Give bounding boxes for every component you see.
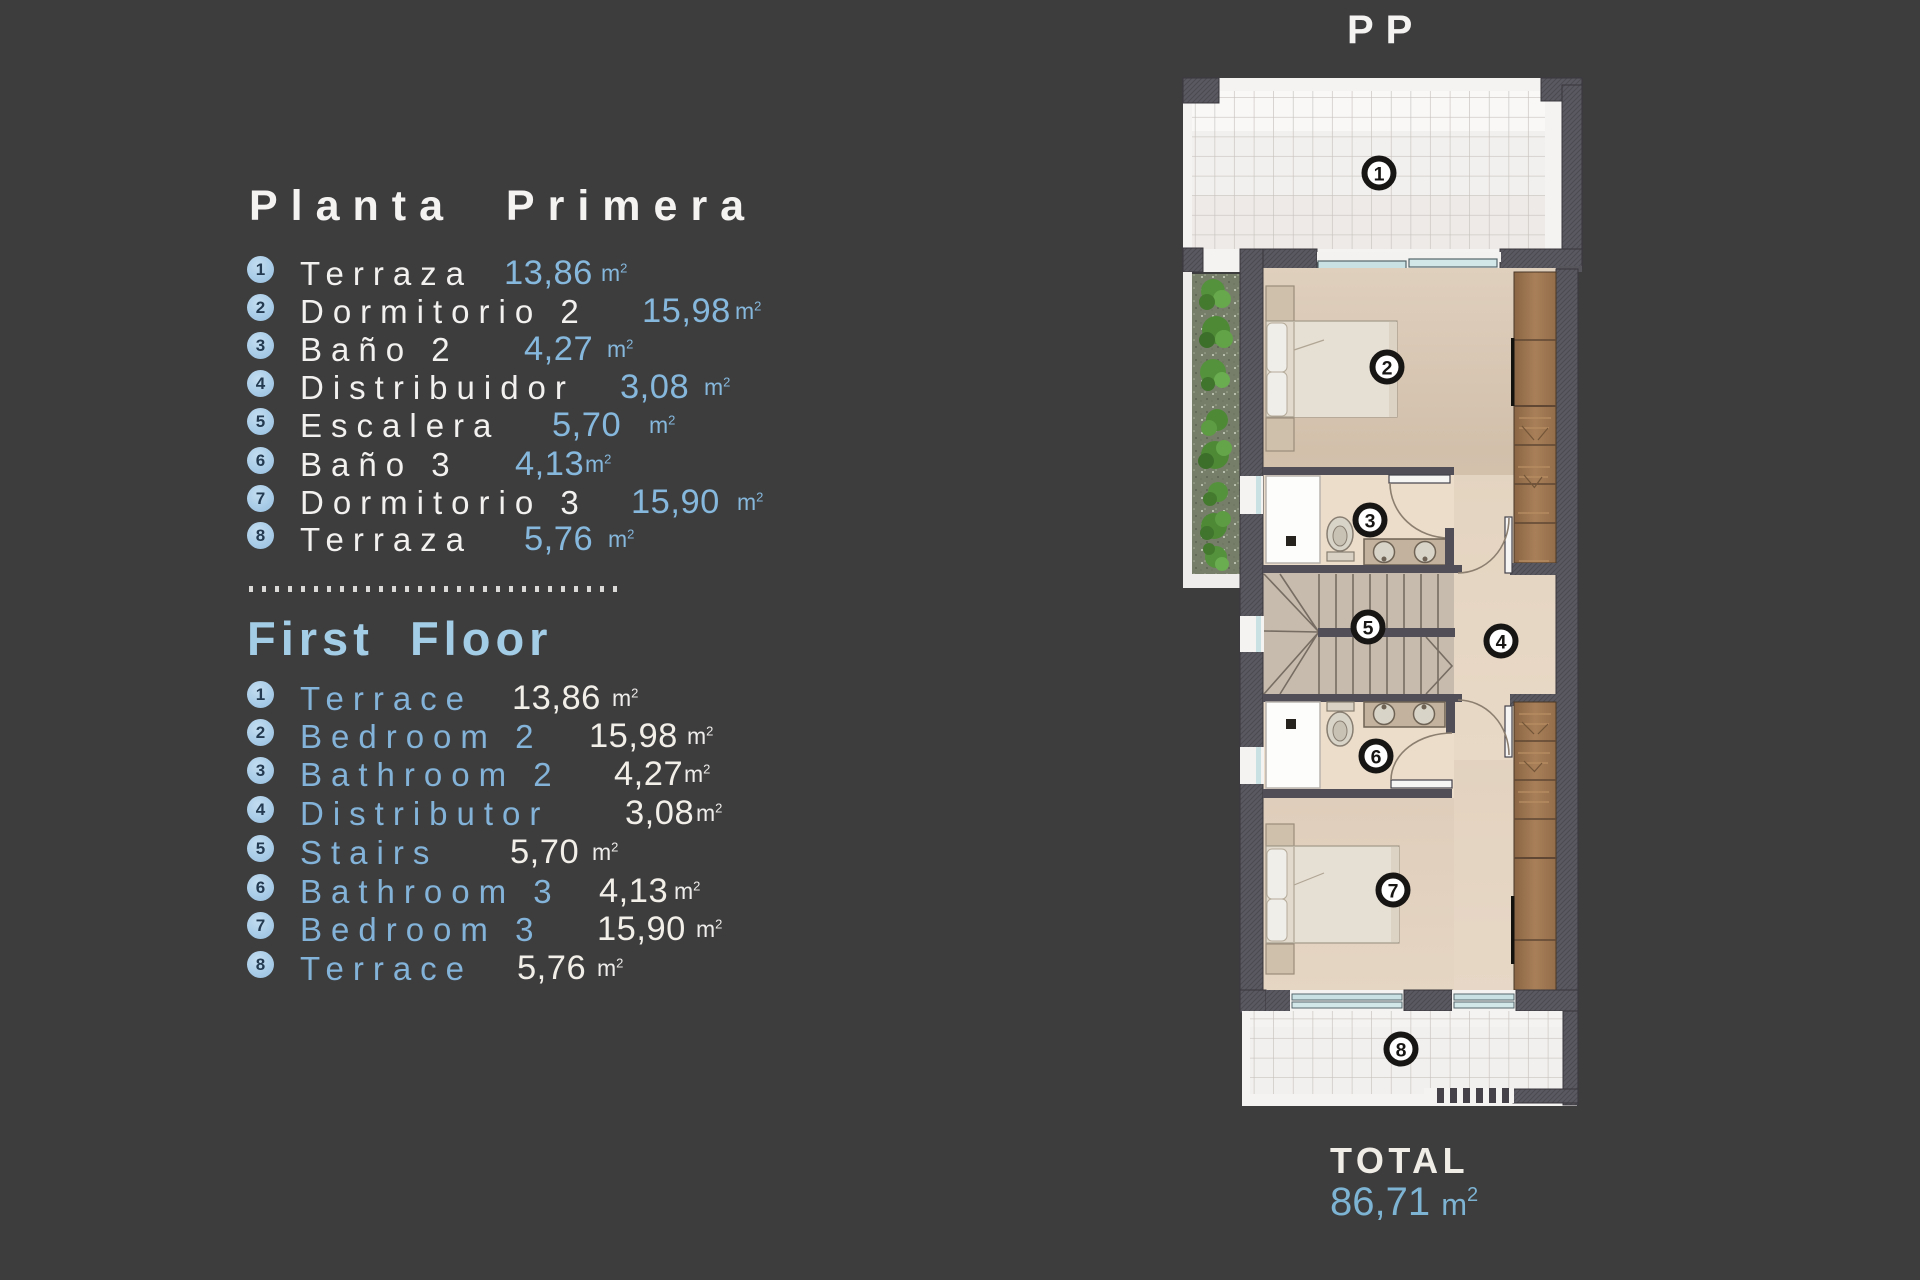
svg-text:8: 8: [1396, 1040, 1407, 1062]
svg-text:5: 5: [1363, 618, 1374, 640]
svg-text:7: 7: [1388, 881, 1399, 903]
svg-text:2: 2: [1382, 358, 1393, 380]
svg-text:4: 4: [1496, 632, 1507, 654]
svg-text:6: 6: [1371, 747, 1382, 769]
svg-text:1: 1: [1374, 164, 1385, 186]
svg-text:3: 3: [1365, 511, 1376, 533]
